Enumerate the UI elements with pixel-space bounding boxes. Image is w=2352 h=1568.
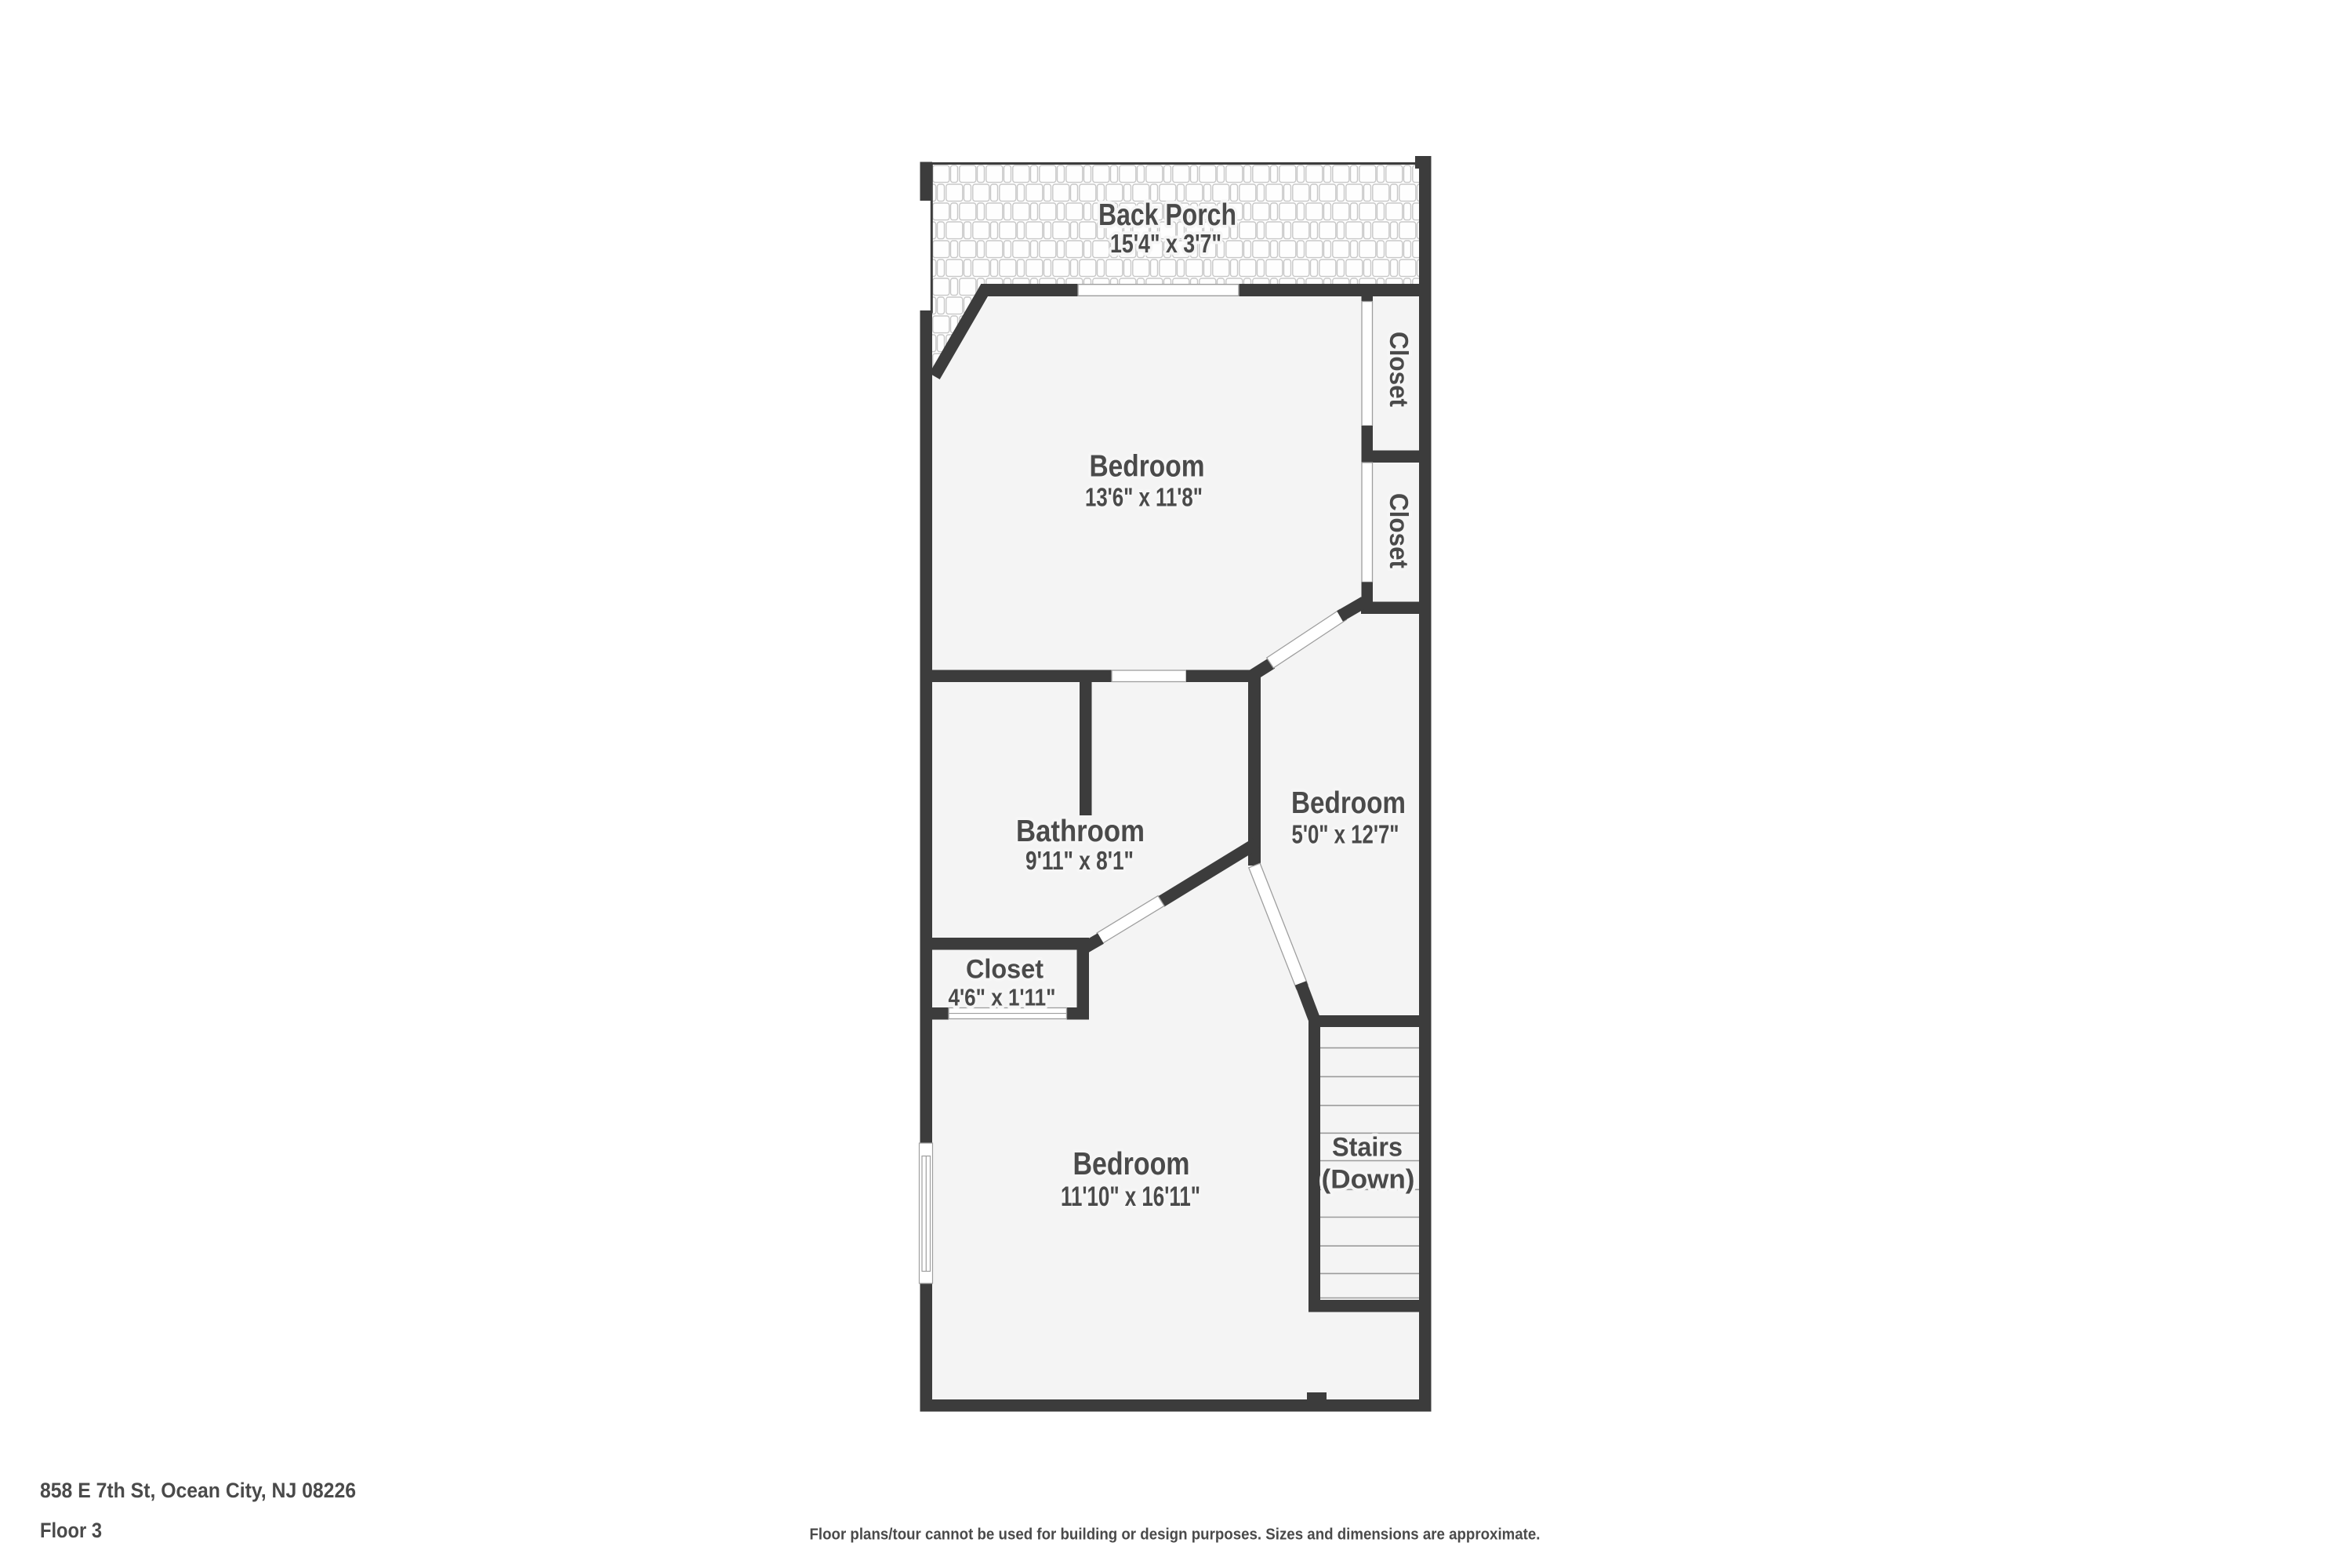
svg-text:4'6" x 1'11": 4'6" x 1'11" bbox=[949, 983, 1056, 1011]
svg-text:Closet: Closet bbox=[1385, 332, 1414, 407]
svg-text:Closet: Closet bbox=[966, 954, 1044, 984]
svg-text:Bathroom: Bathroom bbox=[1016, 815, 1145, 848]
svg-text:Stairs: Stairs bbox=[1332, 1132, 1403, 1162]
svg-text:11'10" x 16'11": 11'10" x 16'11" bbox=[1061, 1181, 1200, 1212]
svg-text:5'0" x 12'7": 5'0" x 12'7" bbox=[1292, 820, 1399, 849]
svg-text:Bedroom: Bedroom bbox=[1291, 786, 1406, 820]
svg-text:Closet: Closet bbox=[1385, 493, 1414, 568]
svg-text:Bedroom: Bedroom bbox=[1090, 450, 1205, 484]
svg-text:858 E 7th St, Ocean City, NJ 0: 858 E 7th St, Ocean City, NJ 08226 bbox=[40, 1479, 356, 1502]
svg-text:Floor plans/tour cannot be use: Floor plans/tour cannot be used for buil… bbox=[810, 1526, 1541, 1544]
svg-text:9'11" x 8'1": 9'11" x 8'1" bbox=[1025, 846, 1134, 875]
svg-text:Bedroom: Bedroom bbox=[1073, 1145, 1190, 1181]
svg-text:Floor 3: Floor 3 bbox=[40, 1519, 102, 1542]
svg-text:Back Porch: Back Porch bbox=[1098, 198, 1236, 232]
svg-text:15'4" x 3'7": 15'4" x 3'7" bbox=[1110, 229, 1221, 258]
svg-text:13'6" x 11'8": 13'6" x 11'8" bbox=[1085, 483, 1203, 512]
svg-text:(Down): (Down) bbox=[1322, 1165, 1415, 1195]
